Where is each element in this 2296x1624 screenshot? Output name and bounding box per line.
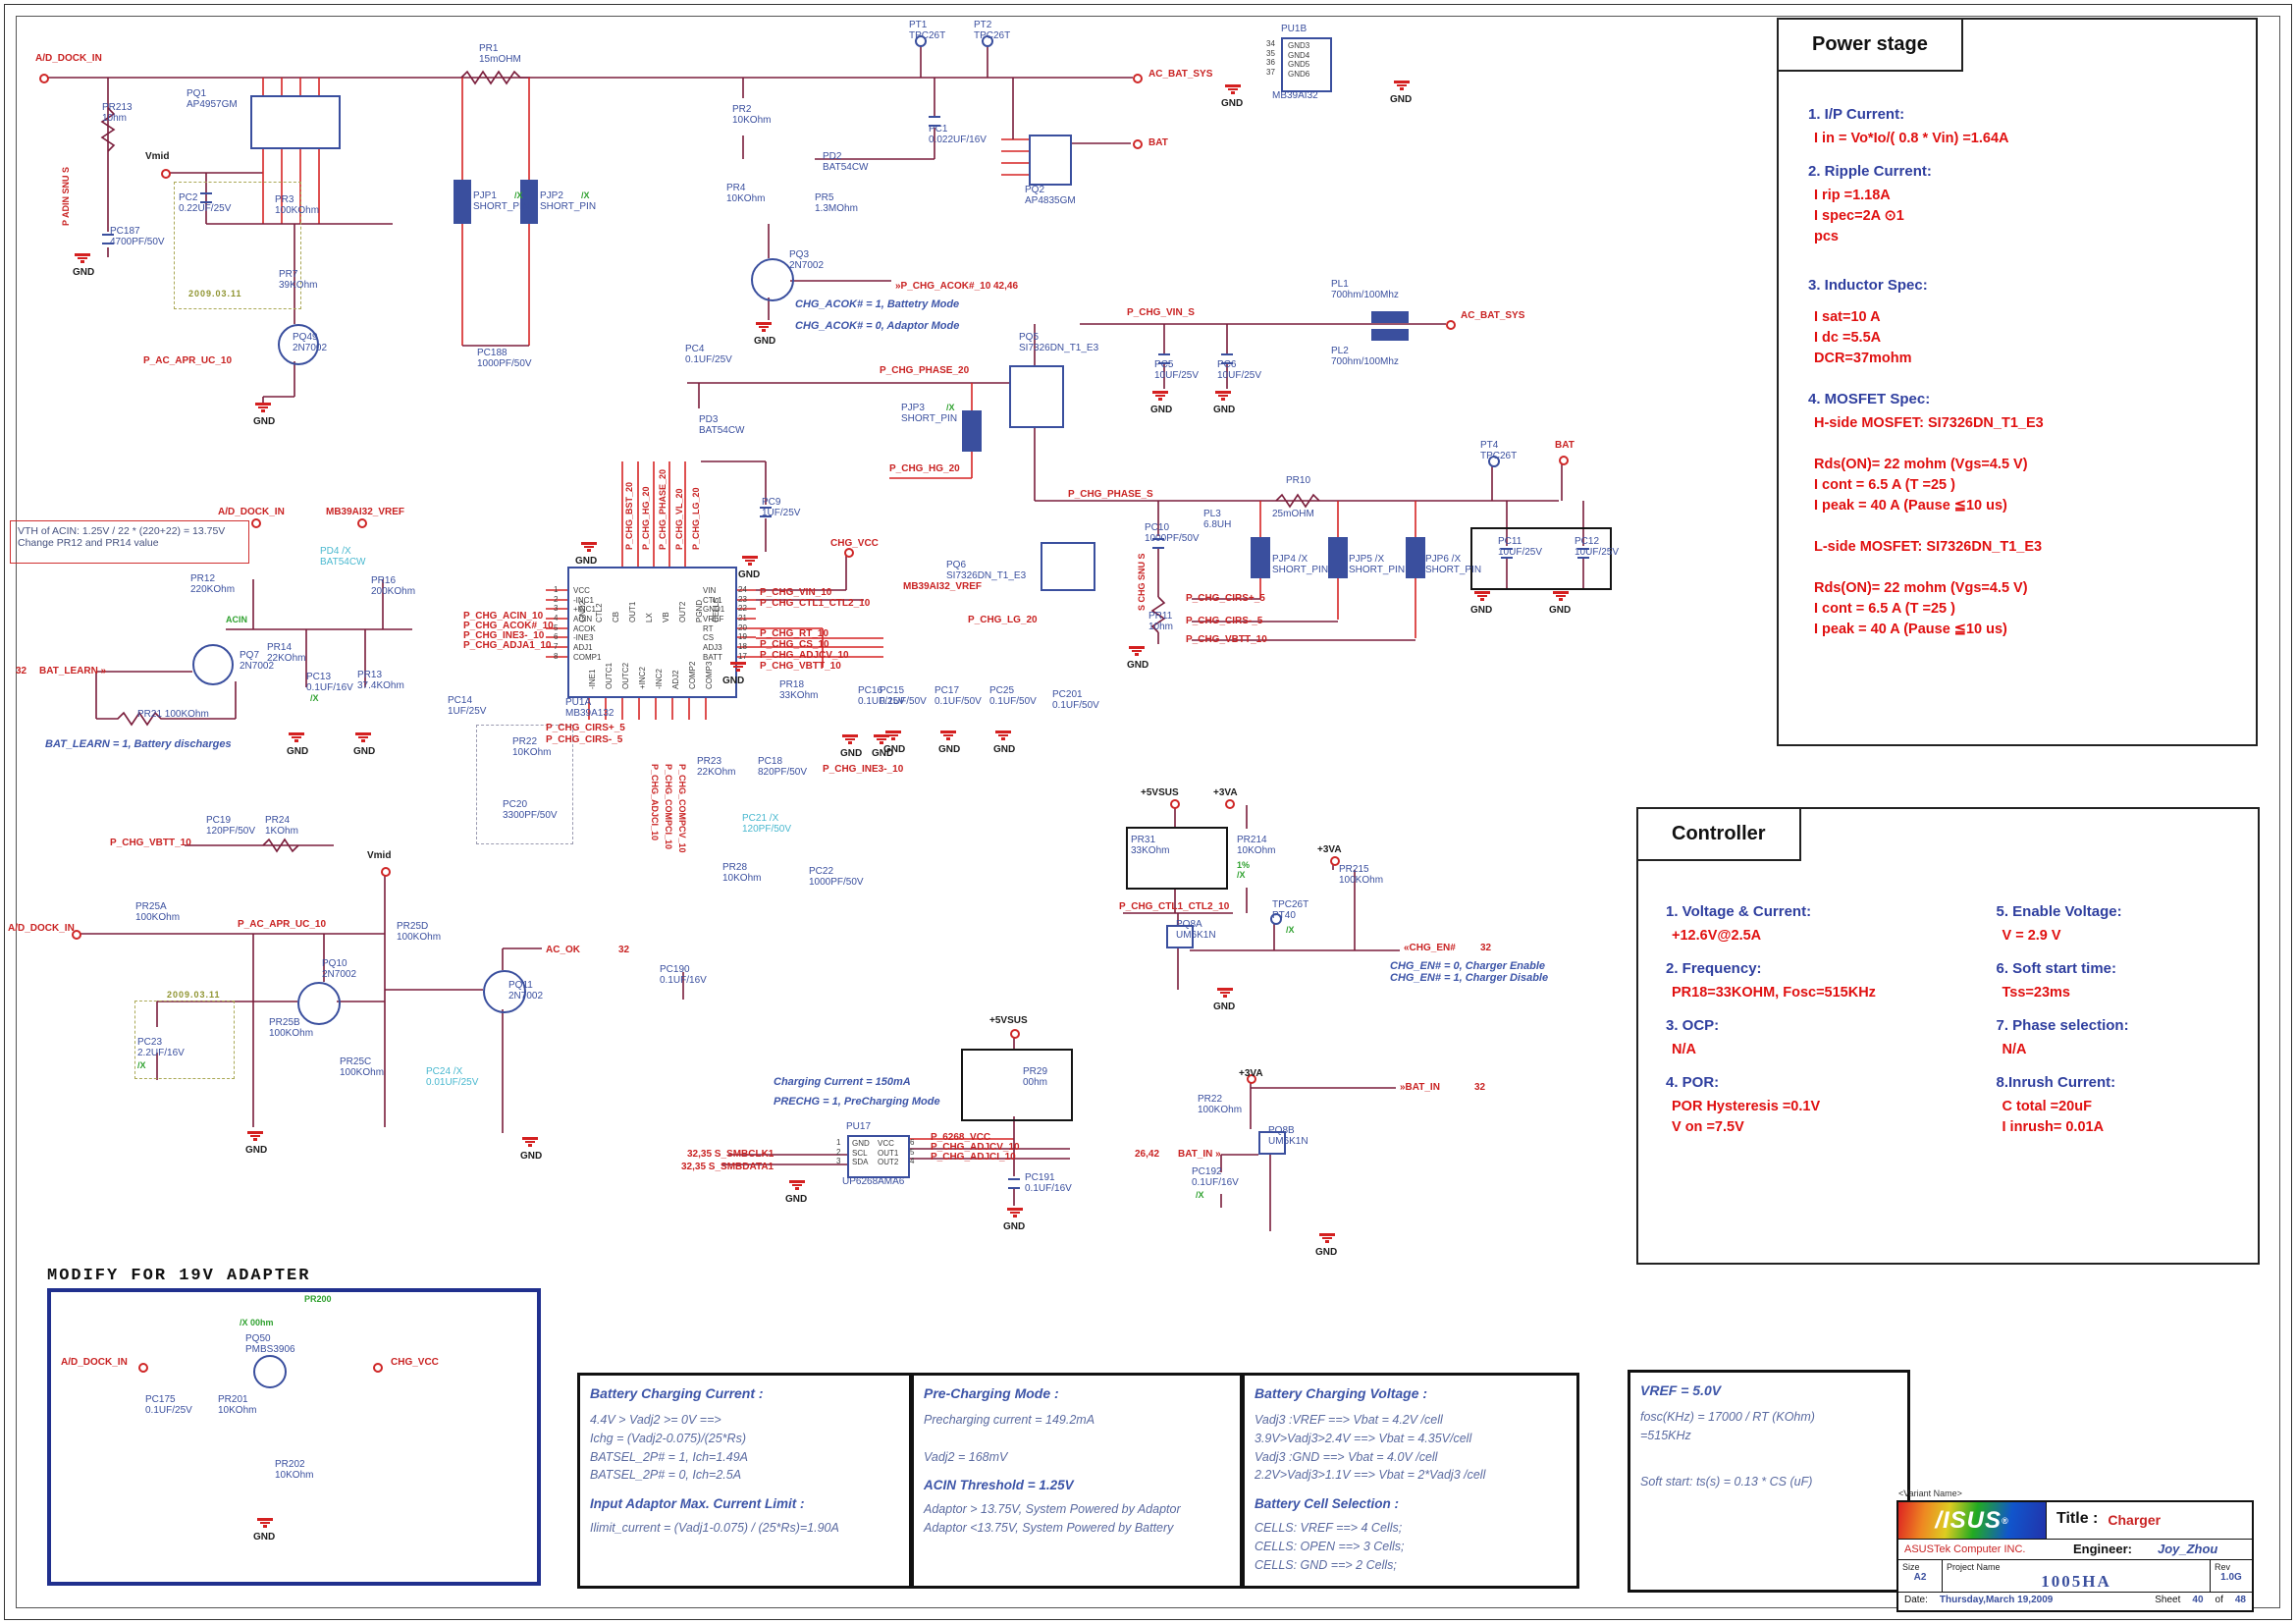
component-label: /X: [581, 190, 590, 200]
component-label: 1 2 3 4 5 6 7 8: [554, 585, 558, 661]
port-symbol: [39, 74, 49, 83]
note-lines: Precharging current = 149.2mA Vadj2 = 16…: [924, 1411, 1230, 1466]
gnd-symbol: [1152, 391, 1168, 394]
component-label: 6 5 4: [910, 1138, 914, 1166]
component-label: +5VSUS: [989, 1015, 1028, 1026]
component-label: GND: [1150, 405, 1172, 415]
component-label: PQ8A UM6K1N: [1176, 919, 1216, 941]
component-label: PR213 10hm: [102, 102, 133, 124]
port-symbol: [1133, 74, 1143, 83]
component-label: VTH of ACIN: 1.25V / 22 * (220+22) = 13.…: [18, 526, 225, 550]
net-label: BAT_IN »: [1178, 1149, 1221, 1160]
net-label: P_CHG_COMPCI_10: [664, 764, 673, 849]
component-label: PR31 33KOhm: [1131, 835, 1169, 856]
component-label: PC18 820PF/50V: [758, 756, 807, 778]
gnd-symbol: [756, 322, 772, 325]
note-lines: CELLS: VREF ==> 4 Cells; CELLS: OPEN ==>…: [1255, 1519, 1567, 1574]
component-label: PQ2 AP4835GM: [1025, 185, 1076, 206]
component-label: PC19 120PF/50V: [206, 815, 255, 837]
component-label: PR25C 100KOhm: [340, 1056, 384, 1078]
gnd-symbol: [247, 1131, 263, 1134]
box-symbol: [250, 95, 341, 149]
section-heading: 3. OCP:: [1666, 1017, 1928, 1034]
net-label: 32,35 S_SMBDATA1: [681, 1162, 774, 1172]
net-label: AC_BAT_SYS: [1461, 310, 1524, 321]
port-symbol: [357, 518, 367, 528]
component-label: PU17: [846, 1121, 871, 1132]
port-symbol: [138, 1363, 148, 1373]
component-label: PR1 15mOHM: [479, 43, 521, 65]
box-symbol: [1029, 135, 1072, 186]
component-label: PR5 1.3MOhm: [815, 192, 858, 214]
net-label: 32: [1474, 1082, 1485, 1093]
gnd-symbol: [581, 542, 597, 545]
component-label: OUTC2: [622, 663, 631, 689]
gnd-symbol: [1225, 84, 1241, 87]
net-label: BAT: [1148, 137, 1168, 148]
section-heading: 2. Ripple Current:: [1808, 163, 2256, 180]
component-label: 34 35 36 37: [1266, 39, 1275, 78]
component-label: PR18 33KOhm: [779, 679, 818, 701]
component-label: ADJ2: [672, 670, 681, 689]
net-label: P_CHG_CIRS-_5: [546, 734, 622, 745]
net-label: P_CHG_PHASE_20: [658, 469, 667, 550]
component-label: PQ50 PMBS3906: [245, 1333, 295, 1355]
component-label: PC192 0.1UF/16V: [1192, 1166, 1239, 1188]
engineer-name: Joy_Zhou: [2132, 1540, 2217, 1559]
gnd-symbol: [522, 1137, 538, 1140]
component-label: GND: [738, 569, 760, 580]
port-symbol: [373, 1363, 383, 1373]
component-label: PJP5 /X SHORT_PIN: [1349, 554, 1405, 575]
component-label: PR215 100KOhm: [1339, 864, 1383, 886]
component-label: PR200: [304, 1294, 332, 1304]
jp-symbol: [1251, 537, 1270, 578]
gnd-symbol: [75, 253, 90, 256]
title-label: Title :: [2047, 1502, 2104, 1539]
net-label: P_CHG_CTL1_CTL2_10: [1119, 901, 1229, 912]
component-label: PQ11 2N7002: [508, 980, 543, 1001]
component-label: +5VSUS: [1141, 787, 1179, 798]
port-symbol: [251, 518, 261, 528]
component-label: PR13 37.4KOhm: [357, 670, 404, 691]
port-symbol: [1225, 799, 1235, 809]
section-lines: V = 2.9 V: [2002, 926, 2259, 947]
note-title: Pre-Charging Mode :: [924, 1385, 1230, 1401]
component-label: PQ7 2N7002: [240, 650, 274, 672]
net-label: «CHG_EN#: [1404, 943, 1456, 953]
component-label: PQ6 SI7326DN_T1_E3: [946, 560, 1026, 581]
net-label: S CHG SNU S: [1137, 553, 1147, 611]
date-value: Thursday,March 19,2009: [1934, 1593, 2058, 1608]
component-label: PR25D 100KOhm: [397, 921, 441, 943]
component-label: CELLS: [713, 598, 721, 623]
component-label: PC23 2.2UF/16V: [137, 1037, 185, 1058]
jp-symbol: [454, 180, 471, 224]
net-label: P_CHG_VIN_S: [1127, 307, 1195, 318]
sheet-label: Sheet: [2149, 1593, 2186, 1608]
component-label: 2009.03.11: [188, 289, 242, 298]
section-lines: I sat=10 A I dc =5.5A DCR=37mohm: [1814, 307, 2256, 369]
pre-charging-mode-note: Pre-Charging Mode : Precharging current …: [911, 1373, 1243, 1589]
project-cell: Project Name 1005HA: [1943, 1560, 2211, 1592]
section-heading: 5. Enable Voltage:: [1997, 903, 2259, 920]
component-label: PR16 200KOhm: [371, 575, 415, 597]
net-label: P_CHG_VIN_10: [760, 587, 831, 598]
cap-symbol: [1008, 1178, 1020, 1189]
component-label: GND: [722, 676, 744, 686]
net-label: »BAT_IN: [1400, 1082, 1440, 1093]
component-label: PQ1 AP4957GM: [187, 88, 238, 110]
component-label: PC12 10UF/25V: [1575, 536, 1619, 558]
component-label: GND: [1315, 1247, 1337, 1258]
component-label: UP6268AMA6: [842, 1176, 904, 1187]
component-label: GND: [883, 744, 905, 755]
schematic-sheet: A/D_DOCK_INPR213 10hmP ADIN SNU SPC187 4…: [0, 0, 2296, 1624]
component-label: /X 00hm: [240, 1318, 274, 1327]
component-label: PC9 1UF/25V: [762, 497, 800, 518]
component-label: GND: [253, 1532, 275, 1543]
net-label: MB39AI32_VREF: [326, 507, 404, 517]
component-label: CHG_ACOK# = 0, Adaptor Mode: [795, 320, 959, 332]
component-label: PR3 100KOhm: [275, 194, 319, 216]
component-label: PC187 4700PF/50V: [110, 226, 165, 247]
port-symbol: [381, 867, 391, 877]
component-label: Vmid: [145, 151, 169, 162]
power-stage-box: Power stage 1. I/P Current: I in = Vo*Io…: [1777, 18, 2258, 746]
component-label: OUT2: [679, 602, 688, 623]
component-label: CB: [613, 612, 621, 623]
section-lines: PR18=33KOHM, Fosc=515KHz: [1672, 983, 1928, 1003]
component-label: GND: [993, 744, 1015, 755]
component-label: GND: [1213, 1001, 1235, 1012]
bb-symbol: [961, 1049, 1073, 1121]
component-label: PC5 10UF/25V: [1154, 359, 1199, 381]
port-symbol: [1010, 1029, 1020, 1039]
component-label: PC4 0.1UF/25V: [685, 344, 732, 365]
fet-symbol: [751, 258, 794, 301]
note-lines: 4.4V > Vadj2 >= 0V ==> Ichg = (Vadj2-0.0…: [590, 1411, 899, 1485]
component-label: PJP6 /X SHORT_PIN: [1425, 554, 1481, 575]
section-lines: +12.6V@2.5A: [1672, 926, 1928, 947]
component-label: MODIFY FOR 19V ADAPTER: [47, 1267, 310, 1285]
net-label: P_CHG_VBTT_10: [1186, 634, 1267, 645]
variant-name: <Variant Name>: [1898, 1489, 1962, 1498]
gnd-symbol: [1129, 646, 1145, 649]
net-label: »P_CHG_ACOK#_10: [895, 281, 990, 292]
net-label: P ADIN SNU S: [61, 167, 71, 226]
net-label: P_CHG_ADJCI_10: [650, 764, 660, 840]
power-stage-section: 4. MOSFET Spec: H-side MOSFET: SI7326DN_…: [1808, 391, 2256, 640]
section-lines: C total =20uF I inrush= 0.01A: [2002, 1097, 2259, 1138]
fet-symbol: [192, 644, 234, 685]
component-label: PL3 6.8UH: [1203, 509, 1231, 530]
component-label: PR214 10KOhm: [1237, 835, 1275, 856]
section-heading: 1. Voltage & Current:: [1666, 903, 1928, 920]
gnd-symbol: [874, 734, 889, 737]
gnd-symbol: [995, 731, 1011, 733]
component-label: PC24 /X 0.01UF/25V: [426, 1066, 478, 1088]
net-label: CHG_VCC: [391, 1357, 439, 1368]
component-label: TPC26T PT40: [1272, 899, 1308, 921]
component-label: PL1 700hm/100Mhz: [1331, 279, 1399, 300]
vref-note: VREF = 5.0V fosc(KHz) = 17000 / RT (KOhm…: [1628, 1370, 1910, 1593]
net-label: P_CHG_PHASE_S: [1068, 489, 1153, 500]
note-title: Battery Cell Selection :: [1255, 1496, 1567, 1511]
component-label: GND: [287, 746, 308, 757]
note-lines: fosc(KHz) = 17000 / RT (KOhm) =515KHz: [1640, 1408, 1897, 1445]
net-label: P_AC_APR_UC_10: [143, 355, 232, 366]
note-title: Input Adaptor Max. Current Limit :: [590, 1496, 899, 1511]
component-label: PQ3 2N7002: [789, 249, 824, 271]
component-label: GND: [1003, 1221, 1025, 1232]
net-label: 32: [618, 945, 629, 955]
jp-symbol: [1328, 537, 1348, 578]
component-label: GND: [785, 1194, 807, 1205]
component-label: PC14 1UF/25V: [448, 695, 486, 717]
component-label: GND: [1390, 94, 1412, 105]
component-label: PT1 TPC26T: [909, 20, 945, 41]
section-lines: I rip =1.18A I spec=2A ⊙1 pcs: [1814, 186, 2256, 247]
component-label: PC11 10UF/25V: [1498, 536, 1542, 558]
component-label: PR7 39KOhm: [279, 269, 317, 291]
note-lines: Adaptor > 13.75V, System Powered by Adap…: [924, 1500, 1230, 1538]
net-label: P_CHG_RT_10: [760, 628, 828, 639]
section-heading: 4. POR:: [1666, 1074, 1928, 1091]
component-label: GND: [575, 556, 597, 567]
component-label: OUTC1: [606, 663, 614, 689]
component-label: PQ49 2N7002: [293, 332, 327, 353]
component-label: PR21 100KOhm: [137, 709, 209, 720]
note-lines: Ilimit_current = (Vadj1-0.075) / (25*Rs)…: [590, 1519, 899, 1538]
component-label: PC201 0.1UF/50V: [1052, 689, 1099, 711]
component-label: GND: [353, 746, 375, 757]
component-label: OUT1: [629, 602, 638, 623]
net-label: 32,35 S_SMBCLK1: [687, 1149, 774, 1160]
section-lines: H-side MOSFET: SI7326DN_T1_E3 Rds(ON)= 2…: [1814, 413, 2256, 640]
net-label: P_CHG_ADJCI_10: [931, 1152, 1016, 1163]
component-label: PC2 0.22UF/25V: [179, 192, 231, 214]
component-label: /X: [946, 403, 955, 412]
component-label: +3VA: [1213, 787, 1238, 798]
component-label: PR24 1KOhm: [265, 815, 298, 837]
controller-title: Controller: [1636, 807, 1801, 861]
gnd-symbol: [885, 731, 901, 733]
net-label: P_AC_APR_UC_10: [238, 919, 326, 930]
component-label: PC191 0.1UF/16V: [1025, 1172, 1072, 1194]
component-label: 24 23 22 21 20 19 18 17: [738, 585, 747, 661]
net-label: P_CHG_VBTT_10: [110, 838, 191, 848]
component-label: COMP2: [689, 662, 698, 689]
net-label: 42,46: [993, 281, 1018, 292]
battery-charging-voltage-note: Battery Charging Voltage : Vadj3 :VREF =…: [1242, 1373, 1579, 1589]
gnd-symbol: [1215, 391, 1231, 394]
component-label: GND: [754, 336, 775, 347]
component-label: PR202 10KOhm: [275, 1459, 313, 1481]
component-label: GND: [520, 1151, 542, 1162]
port-symbol: [1133, 139, 1143, 149]
component-label: +3VA: [1239, 1068, 1263, 1079]
net-label: P_CHG_CTL1_CTL2_10: [760, 598, 870, 609]
component-label: ACIN: [226, 615, 247, 624]
net-label: P_CHG_LG_20: [691, 487, 701, 550]
section-heading: 6. Soft start time:: [1997, 960, 2259, 977]
component-label: PL2 700hm/100Mhz: [1331, 346, 1399, 367]
section-lines: N/A: [1672, 1040, 1928, 1060]
component-label: GND SCL SDA: [852, 1139, 870, 1167]
component-label: Vmid: [367, 850, 391, 861]
box-symbol: [1041, 542, 1095, 591]
gnd-symbol: [940, 731, 956, 733]
component-label: PR23 22KOhm: [697, 756, 735, 778]
component-label: GND: [1213, 405, 1235, 415]
net-label: 32: [16, 666, 27, 677]
component-label: PC25 0.1UF/50V: [989, 685, 1037, 707]
net-label: AC_BAT_SYS: [1148, 69, 1212, 80]
component-label: CTL2: [596, 603, 605, 623]
sheet-total: 48: [2229, 1593, 2252, 1608]
net-label: P_CHG_CS_10: [760, 639, 829, 650]
component-label: GND3 GND4 GND5 GND6: [1288, 41, 1309, 80]
section-lines: Tss=23ms: [2002, 983, 2259, 1003]
component-label: GND: [73, 267, 94, 278]
port-symbol: [161, 169, 171, 179]
component-label: PR12 220KOhm: [190, 573, 235, 595]
section-heading: 2. Frequency:: [1666, 960, 1928, 977]
port-symbol: [1559, 456, 1569, 465]
jp-symbol: [962, 410, 982, 452]
component-label: 1 2 3: [836, 1138, 840, 1166]
net-label: P_CHG_BST_20: [624, 482, 634, 550]
power-stage-section: 1. I/P Current: I in = Vo*Io/( 0.8 * Vin…: [1808, 106, 2256, 149]
net-label: P_CHG_VBTT_10: [760, 661, 841, 672]
component-label: GND: [1470, 605, 1492, 616]
gnd-symbol: [255, 403, 271, 406]
asus-logo: /ISUS®: [1898, 1502, 2047, 1539]
component-label: PC20 3300PF/50V: [503, 799, 558, 821]
component-label: GND: [253, 416, 275, 427]
title-block: <Variant Name> /ISUS® Title : Charger AS…: [1896, 1500, 2254, 1612]
net-label: A/D_DOCK_IN: [218, 507, 285, 517]
component-label: 1% /X: [1237, 860, 1250, 880]
component-label: PR11 10hm: [1148, 611, 1173, 632]
note-title: ACIN Threshold = 1.25V: [924, 1478, 1230, 1492]
component-label: PC15 0.1UF/50V: [880, 685, 927, 707]
component-label: VCC -INC1 +INC1 ACIN ACOK -INE3 ADJ1 COM…: [573, 586, 601, 662]
component-label: PR25A 100KOhm: [135, 901, 180, 923]
gnd-symbol: [1394, 81, 1410, 83]
section-heading: 7. Phase selection:: [1997, 1017, 2259, 1034]
component-label: GND: [1549, 605, 1571, 616]
net-label: P_CHG_CIRS-_5: [1186, 616, 1262, 626]
component-label: +INC2: [639, 667, 648, 689]
component-label: GND: [840, 748, 862, 759]
component-label: Charging Current = 150mA: [774, 1076, 911, 1088]
date-label: Date:: [1898, 1593, 1934, 1608]
net-label: P_CHG_INE3-_10: [823, 764, 903, 775]
net-label: 26,42: [1135, 1149, 1159, 1160]
net-label: P_CHG_PHASE_20: [880, 365, 969, 376]
component-label: /X: [310, 693, 319, 703]
net-label: P_CHG_COMPCV_10: [677, 764, 687, 853]
component-label: PGND: [696, 600, 705, 623]
component-label: PR25B 100KOhm: [269, 1017, 313, 1039]
jp-symbol: [1406, 537, 1425, 578]
component-label: PC13 0.1UF/16V: [306, 672, 353, 693]
gnd-symbol: [1474, 591, 1490, 594]
component-label: VB: [663, 612, 671, 623]
component-label: PC175 0.1UF/25V: [145, 1394, 192, 1416]
component-label: +3VA: [1317, 844, 1342, 855]
component-label: PC10 1000PF/50V: [1145, 522, 1200, 544]
component-label: -INE1: [589, 670, 598, 689]
section-lines: I in = Vo*Io/( 0.8 * Vin) =1.64A: [1814, 129, 2256, 149]
component-label: PU1B: [1281, 24, 1307, 34]
component-label: PR28 10KOhm: [722, 862, 761, 884]
net-label: A/D_DOCK_IN: [61, 1357, 128, 1368]
component-label: GND: [1127, 660, 1148, 671]
component-label: GND: [1221, 98, 1243, 109]
gnd-symbol: [257, 1518, 273, 1521]
component-label: PC22 1000PF/50V: [809, 866, 864, 888]
net-label: BAT: [1555, 440, 1575, 451]
section-heading: 1. I/P Current:: [1808, 106, 2256, 123]
net-label: MB39AI32_VREF: [903, 581, 982, 592]
net-label: P_CHG_CIRS+_5: [546, 723, 625, 733]
fet-symbol: [253, 1355, 287, 1388]
component-label: PR22 100KOhm: [1198, 1094, 1242, 1115]
component-label: GND2: [579, 601, 588, 623]
component-label: PR29 00hm: [1023, 1066, 1047, 1088]
power-stage-title: Power stage: [1777, 18, 1963, 72]
note-lines: Vadj3 :VREF ==> Vbat = 4.2V /cell 3.9V>V…: [1255, 1411, 1567, 1485]
net-label: AC_OK: [546, 945, 580, 955]
of-label: of: [2210, 1593, 2229, 1608]
controller-box: Controller 1. Voltage & Current:+12.6V@2…: [1636, 807, 2260, 1265]
component-label: /X: [1196, 1190, 1204, 1200]
component-label: PU1A MB39A132: [565, 697, 614, 719]
net-label: BAT_LEARN »: [39, 666, 106, 677]
component-label: MB39AI32: [1272, 90, 1318, 101]
component-label: 25mOHM: [1272, 509, 1314, 519]
gnd-symbol: [789, 1180, 805, 1183]
component-label: PR2 10KOhm: [732, 104, 771, 126]
engineer-label: Engineer:: [2061, 1540, 2132, 1559]
component-label: PC190 0.1UF/16V: [660, 964, 707, 986]
component-label: PR4 10KOhm: [726, 183, 765, 204]
power-stage-section: 3. Inductor Spec: I sat=10 A I dc =5.5A …: [1808, 277, 2256, 369]
note-title: VREF = 5.0V: [1640, 1382, 1897, 1398]
gnd-symbol: [355, 732, 371, 735]
sheet-number: 40: [2186, 1593, 2209, 1608]
size-cell: Size A2: [1898, 1560, 1943, 1592]
component-label: PD3 BAT54CW: [699, 414, 745, 436]
component-label: /X: [514, 190, 523, 200]
component-label: VCC OUT1 OUT2: [878, 1139, 898, 1167]
gnd-symbol: [1553, 591, 1569, 594]
component-label: COMP3: [706, 662, 715, 689]
component-label: /X: [1286, 925, 1295, 935]
net-label: P_CHG_HG_20: [889, 463, 960, 474]
note-title: Battery Charging Current :: [590, 1385, 899, 1401]
gnd-symbol: [1007, 1208, 1023, 1211]
note-lines: Soft start: ts(s) = 0.13 * CS (uF): [1640, 1473, 1897, 1491]
sheet-title: Charger: [2104, 1502, 2161, 1539]
section-heading: 3. Inductor Spec:: [1808, 277, 2256, 294]
component-label: CHG_EN# = 0, Charger Enable CHG_EN# = 1,…: [1390, 960, 1548, 985]
component-label: LX: [646, 613, 655, 623]
component-label: PC17 0.1UF/50V: [934, 685, 982, 707]
